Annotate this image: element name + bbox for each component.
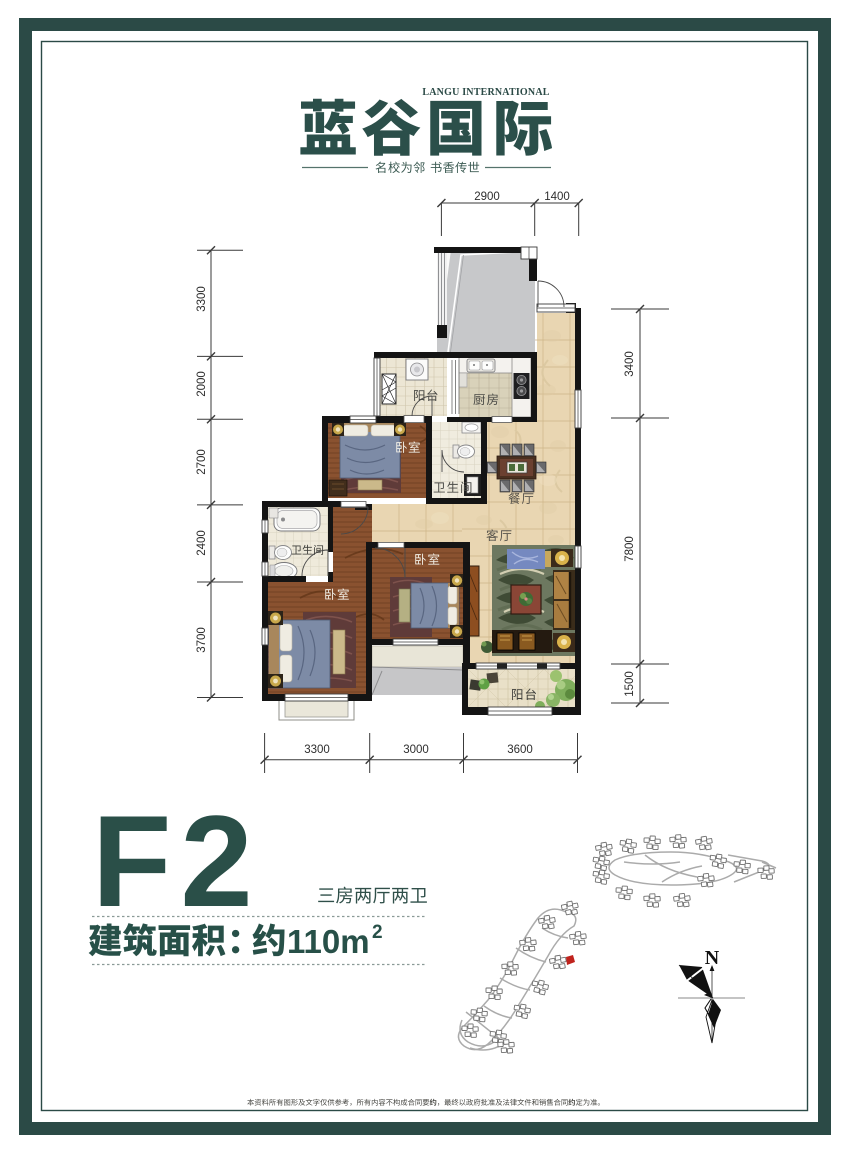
svg-text:1500: 1500 (624, 671, 636, 697)
svg-text:F2: F2 (92, 788, 262, 934)
svg-text:3000: 3000 (403, 744, 429, 756)
svg-text:2400: 2400 (196, 530, 208, 556)
svg-text:LANGU INTERNATIONAL: LANGU INTERNATIONAL (422, 87, 549, 98)
svg-text:2: 2 (372, 922, 383, 943)
svg-text:3700: 3700 (196, 627, 208, 653)
svg-text:3600: 3600 (507, 744, 533, 756)
svg-text:1400: 1400 (544, 191, 570, 203)
svg-text:2700: 2700 (196, 449, 208, 475)
svg-text:2900: 2900 (474, 191, 500, 203)
svg-text:3300: 3300 (304, 744, 330, 756)
svg-text:2000: 2000 (196, 371, 208, 397)
svg-text:7800: 7800 (624, 536, 636, 562)
svg-text:3300: 3300 (196, 286, 208, 312)
svg-text:3400: 3400 (624, 351, 636, 377)
svg-text:110m: 110m (287, 923, 370, 960)
